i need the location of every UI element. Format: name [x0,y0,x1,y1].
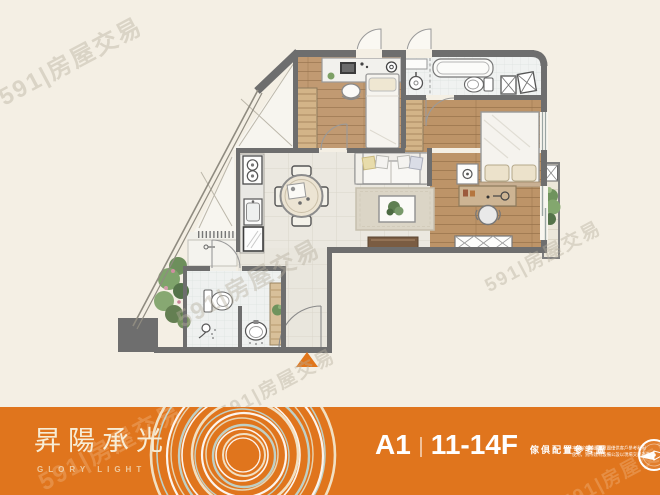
single-bed [366,74,399,148]
wall-block [118,318,158,352]
floor-plan [0,0,660,407]
pillow [485,165,509,181]
washer-icon [387,62,397,72]
sofa-pillow [375,155,388,168]
master-wardrobe [405,99,423,151]
sofa-pillow [397,155,410,168]
compass-icon [632,433,660,477]
screenshot-root: 591|房屋交易 591|房屋交易 591|房屋交易 591|房屋交易 [0,0,660,495]
master-bed [479,112,541,187]
brand-name-en: GLORY LIGHT [34,465,170,474]
unit-name: A1 [375,431,411,459]
balcony-slider [540,186,548,240]
master-desk [459,186,516,206]
sofa-pillow [362,156,376,170]
unit-separator [420,437,422,457]
bedroom2-wardrobe [297,88,317,150]
entrance-marker [296,352,318,367]
vanity-sink [410,77,423,90]
desk-chair [342,84,360,100]
sofa-pillow [409,156,423,170]
desk-plant [328,73,335,80]
footer-band: 昇陽承光 GLORY LIGHT A1 11-14F 傢俱配置參考圖 本案傢俱配… [0,407,660,495]
pillow [512,165,536,181]
brand-logo: 昇陽承光 GLORY LIGHT [34,419,170,474]
toilet-bath-1 [465,77,494,92]
bath-shelf [405,59,427,69]
unit-floors: 11-14F [431,431,518,459]
sofa [355,153,428,184]
toilet-bath-2 [204,290,233,312]
kitchen [240,154,264,253]
brand-name-cn: 昇陽承光 [34,419,170,458]
fridge [244,227,264,251]
